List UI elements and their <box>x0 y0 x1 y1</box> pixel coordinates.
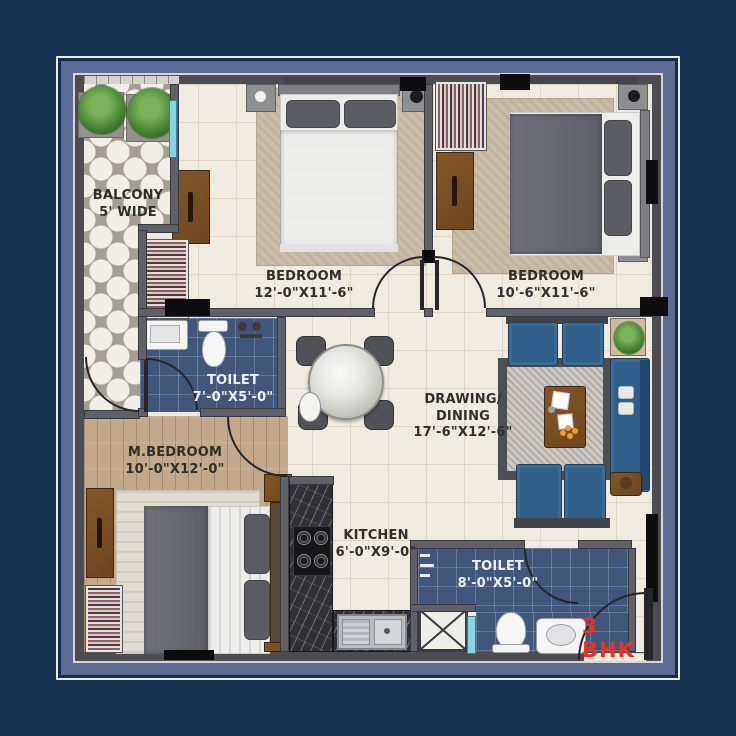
lintel <box>400 77 426 91</box>
lamp <box>628 90 640 102</box>
sofa-back <box>640 360 649 490</box>
balcony-name: BALCONY <box>93 188 164 205</box>
faucet-knob <box>238 322 247 331</box>
shaft-x-icon <box>421 611 465 649</box>
wall-toilet-lower-top-b <box>578 540 632 549</box>
bedroom-right-label: BEDROOM 10'-6"X11'-6" <box>464 266 628 306</box>
wall-balcony-right-lower <box>138 230 147 360</box>
toilet-bowl <box>496 612 526 648</box>
kitchen-label: KITCHEN 6'-0"X9'-0" <box>324 526 428 564</box>
column <box>646 160 658 204</box>
window-strip <box>284 77 402 84</box>
wall-kitchen-stub <box>289 476 334 485</box>
bedroom-left-dim: 12'-0"X11'-6" <box>254 286 353 303</box>
pillow <box>286 100 340 128</box>
toilet-upper-label: TOILET 7'-0"X5'-0" <box>176 370 290 410</box>
lintel <box>164 650 214 660</box>
cushion <box>618 386 634 399</box>
master-bedroom-name: M.BEDROOM <box>128 445 222 462</box>
bowl <box>548 406 555 413</box>
toilet-upper-dim: 7'-0"X5'-0" <box>193 390 274 407</box>
master-bedroom-dim: 10'-0"X12'-0" <box>125 462 224 479</box>
washbasin-bowl <box>546 624 576 646</box>
pillow <box>604 180 632 236</box>
toilet-upper-name: TOILET <box>207 373 259 390</box>
burner <box>297 531 311 545</box>
fruit <box>565 425 571 431</box>
towel-bar <box>420 574 430 577</box>
fruit <box>572 428 578 434</box>
faucet <box>384 628 390 634</box>
balcony-railing <box>84 76 179 84</box>
armchair <box>516 464 562 522</box>
plant <box>78 86 126 134</box>
dresser-handle <box>188 192 193 222</box>
kitchen-name: KITCHEN <box>343 528 408 545</box>
bedroom-left-name: BEDROOM <box>266 269 342 286</box>
washbasin <box>150 325 180 343</box>
cushion <box>618 402 634 415</box>
drawing-dining-label: DRAWING/ DINING 17'-6"X12'-6" <box>396 386 530 448</box>
wall-shaft-top <box>410 604 476 612</box>
shower-bar <box>240 334 262 338</box>
wardrobe <box>86 586 122 652</box>
armchair <box>562 322 604 366</box>
sofa-base <box>514 518 610 528</box>
column <box>640 297 668 316</box>
plan-type-badge: 3 BHK <box>582 624 654 652</box>
bedroom-left-label: BEDROOM 12'-0"X11'-6" <box>224 266 384 306</box>
wall-bedroom-divider <box>424 84 433 256</box>
balcony-dim: 5' WIDE <box>99 205 157 222</box>
pillow <box>244 514 270 574</box>
sink-drainboard <box>342 619 370 645</box>
dresser-handle <box>97 518 102 548</box>
toilet-lower-label: TOILET 8'-0"X5'-0" <box>438 556 558 596</box>
lintel <box>165 299 210 316</box>
blanket-fold <box>280 244 398 252</box>
pillow <box>344 100 396 128</box>
pillow <box>604 120 632 176</box>
toilet-lower-name: TOILET <box>472 559 524 576</box>
dresser-handle <box>452 176 457 206</box>
wall-stub <box>424 308 433 317</box>
lamp <box>254 90 267 103</box>
towel-bar <box>420 564 434 567</box>
drawing-dining-dim: 17'-6"X12'-6" <box>413 425 512 442</box>
window <box>169 100 177 158</box>
pillow <box>244 580 270 640</box>
blanket <box>144 506 208 654</box>
blanket <box>510 114 602 254</box>
wall-bedrooms-bottom-right <box>486 308 652 317</box>
bedroom-right-dim: 10'-6"X11'-6" <box>496 286 595 303</box>
toilet-bowl <box>202 331 226 367</box>
drawing-dining-line2: DINING <box>436 409 490 426</box>
armchair <box>564 464 606 522</box>
lamp <box>410 90 423 103</box>
wall-kitchen-divider <box>280 476 289 652</box>
pedestal-basin <box>299 392 321 422</box>
decor <box>620 477 632 489</box>
drawing-dining-line1: DRAWING/ <box>424 392 501 409</box>
toilet-tank <box>492 644 530 653</box>
floor-plan-canvas: BALCONY 5' WIDE BEDROOM 12'-0"X11'-6" BE… <box>0 0 736 736</box>
fruit <box>567 433 573 439</box>
plant <box>614 322 644 354</box>
fruit <box>560 430 566 436</box>
burner <box>297 554 311 568</box>
bedroom-right-name: BEDROOM <box>508 269 584 286</box>
faucet-knob <box>252 322 261 331</box>
shaft-box <box>418 608 468 652</box>
wardrobe <box>436 82 486 150</box>
blanket <box>280 130 398 248</box>
window <box>467 616 476 654</box>
lintel <box>500 74 530 90</box>
kitchen-dim: 6'-0"X9'-0" <box>336 545 417 562</box>
armchair <box>508 322 558 366</box>
balcony-label: BALCONY 5' WIDE <box>80 184 176 226</box>
master-bedroom-label: M.BEDROOM 10'-0"X12'-0" <box>90 442 260 482</box>
toilet-lower-dim: 8'-0"X5'-0" <box>458 576 539 593</box>
